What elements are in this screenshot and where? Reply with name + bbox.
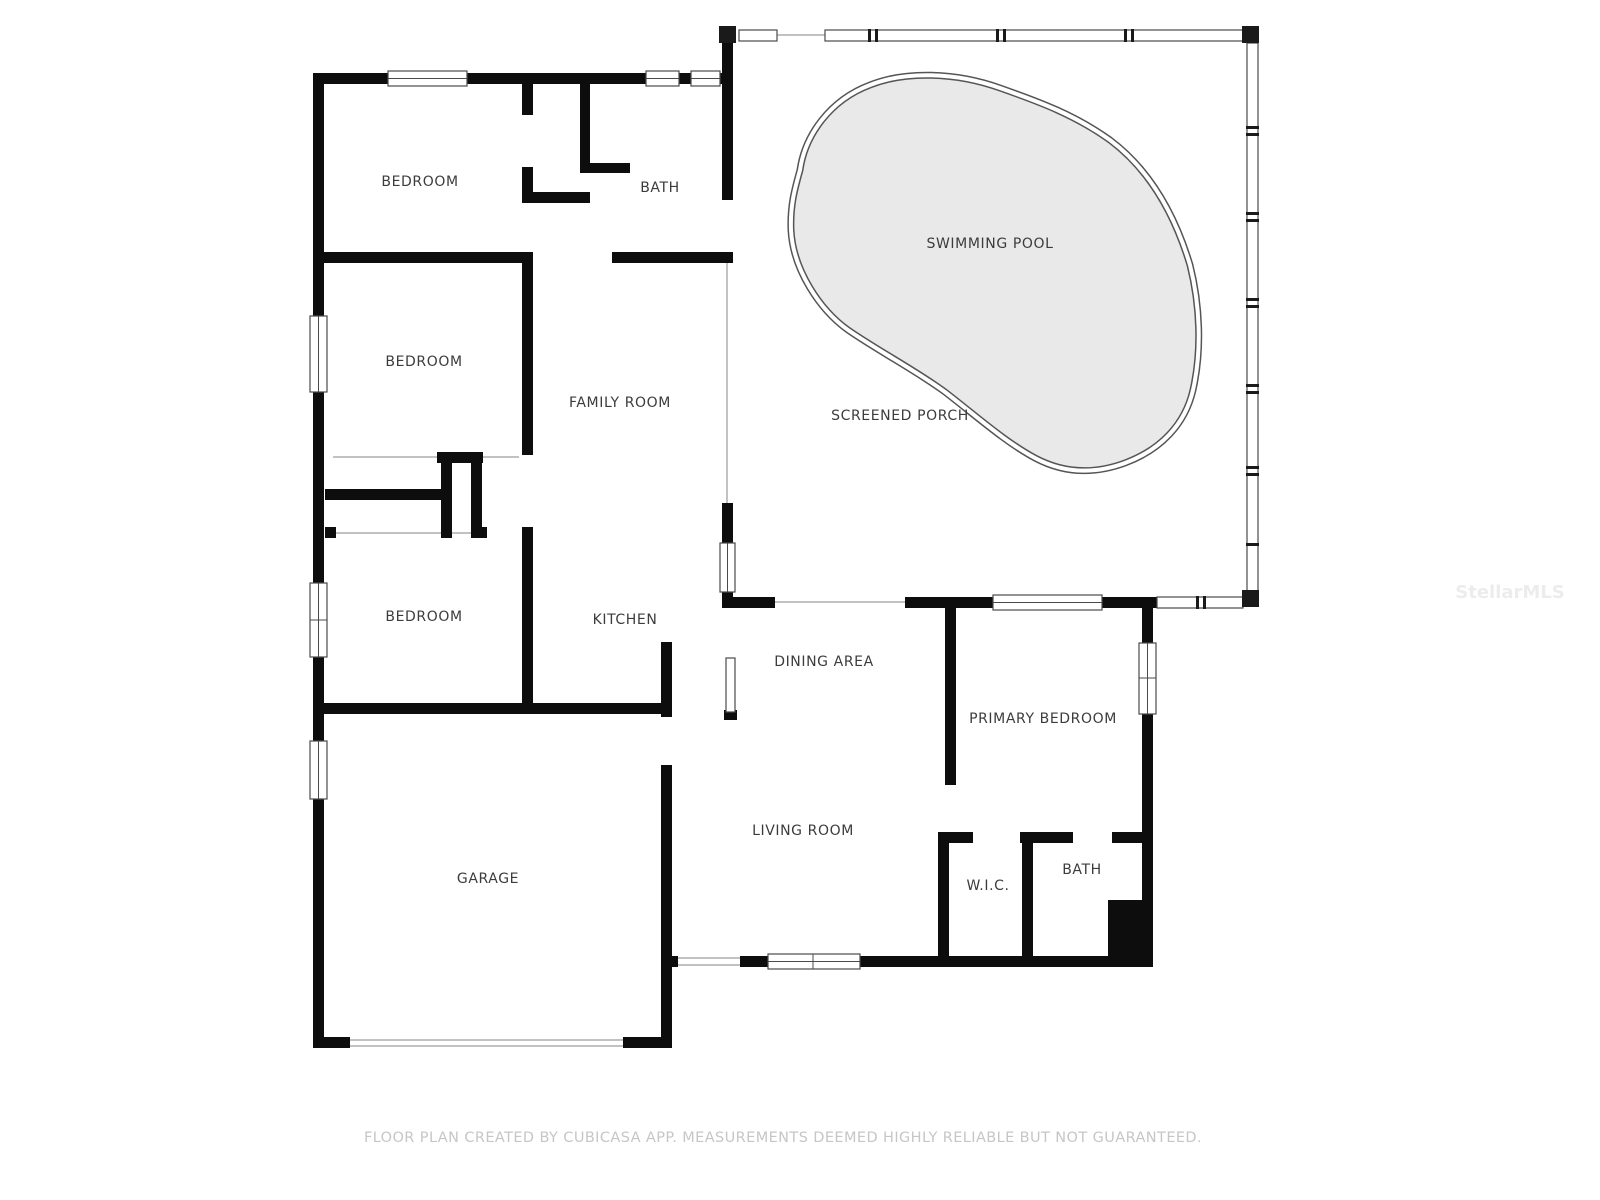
- room-label-garage: GARAGE: [457, 871, 519, 887]
- room-label-kitchen: KITCHEN: [593, 612, 658, 628]
- room-label-living-room: LIVING ROOM: [752, 823, 854, 839]
- room-label-bedroom-1: BEDROOM: [381, 174, 458, 190]
- porch-corner-post: [1242, 590, 1259, 607]
- room-label-bedroom-2: BEDROOM: [385, 354, 462, 370]
- room-label-wic: W.I.C.: [966, 878, 1009, 894]
- room-label-screened-porch: SCREENED PORCH: [831, 408, 969, 424]
- floor-plan-page: BEDROOM BATH SWIMMING POOL BEDROOM FAMIL…: [0, 0, 1600, 1200]
- room-label-bath-1: BATH: [640, 180, 680, 196]
- porch-corner-post: [719, 26, 736, 43]
- room-label-dining-area: DINING AREA: [774, 654, 874, 670]
- footer-disclaimer: FLOOR PLAN CREATED BY CUBICASA APP. MEAS…: [364, 1130, 1202, 1146]
- room-label-swimming-pool: SWIMMING POOL: [927, 236, 1054, 252]
- floor-plan-canvas: BEDROOM BATH SWIMMING POOL BEDROOM FAMIL…: [0, 0, 1600, 1200]
- stellar-mls-watermark: StellarMLS: [1455, 582, 1565, 603]
- room-label-family-room: FAMILY ROOM: [569, 395, 671, 411]
- porch-corner-post: [1242, 26, 1259, 43]
- room-label-bath-2: BATH: [1062, 862, 1102, 878]
- room-label-bedroom-3: BEDROOM: [385, 609, 462, 625]
- room-label-primary-bedroom: PRIMARY BEDROOM: [969, 711, 1117, 727]
